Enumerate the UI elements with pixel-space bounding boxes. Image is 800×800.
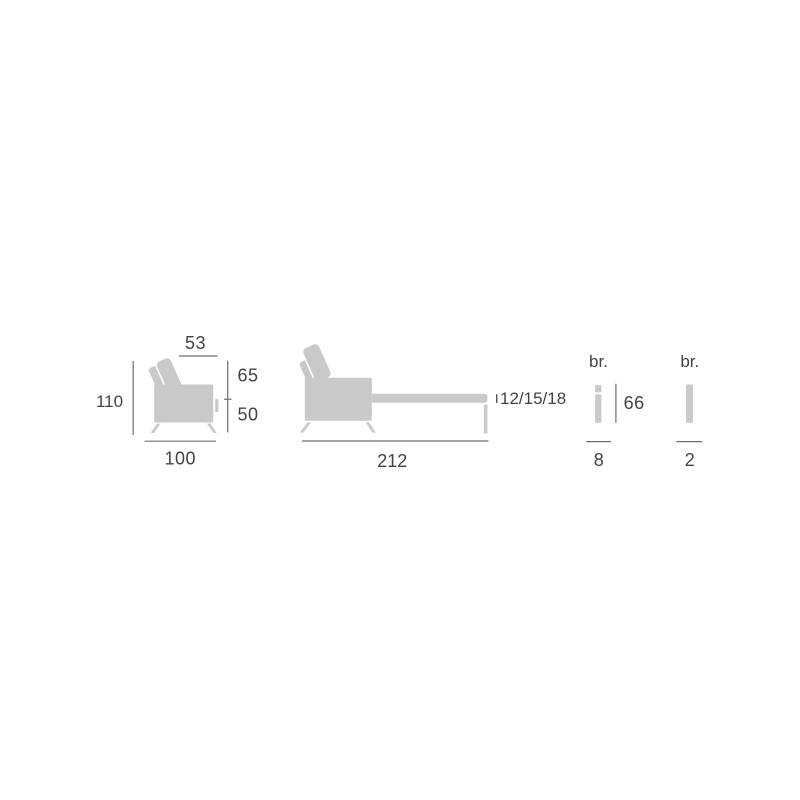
svg-text:100: 100 xyxy=(165,449,197,469)
svg-text:8: 8 xyxy=(594,450,604,470)
svg-text:2: 2 xyxy=(685,450,695,470)
svg-text:50: 50 xyxy=(237,405,258,425)
svg-text:br.: br. xyxy=(589,352,608,371)
svg-text:12/15/18: 12/15/18 xyxy=(500,389,566,408)
svg-text:br.: br. xyxy=(680,352,699,371)
svg-text:66: 66 xyxy=(624,393,645,413)
svg-text:110: 110 xyxy=(96,392,123,411)
svg-text:53: 53 xyxy=(185,333,206,353)
svg-text:65: 65 xyxy=(237,366,258,386)
svg-text:212: 212 xyxy=(377,451,407,471)
